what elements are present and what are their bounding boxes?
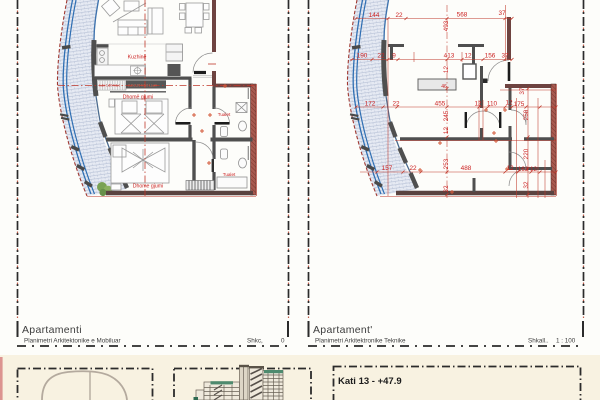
svg-text:190: 190 [357,53,368,60]
svg-text:Tualet: Tualet [223,172,236,177]
svg-text:12: 12 [443,66,450,74]
svg-text:Planimetri Arkitektronike Tekn: Planimetri Arkitektronike Teknike [315,338,406,345]
svg-text:156: 156 [485,53,496,60]
svg-text:12: 12 [474,101,482,108]
svg-text:1,1x 1,50 h:1,1: 1,1x 1,50 h:1,1 [99,84,120,88]
svg-text:253: 253 [443,158,450,169]
svg-text:Apartament': Apartament' [313,324,373,336]
svg-text:Shkc,: Shkc, [247,338,263,345]
svg-text:32: 32 [523,181,530,189]
svg-text:455: 455 [435,101,446,108]
svg-text:2,2x2,20 h:0,0 LLum: 2,2x2,20 h:0,0 LLum [128,83,157,87]
svg-text:37: 37 [519,87,526,95]
svg-text:22: 22 [409,165,417,172]
svg-text:12: 12 [443,127,450,135]
svg-text:245: 245 [443,110,450,121]
svg-text:Kati 13 - +47.9: Kati 13 - +47.9 [338,376,402,387]
svg-text:22: 22 [392,101,400,108]
svg-text:144: 144 [369,12,380,19]
svg-text:37: 37 [498,10,506,17]
svg-text:488: 488 [461,165,472,172]
svg-text:Apartamenti: Apartamenti [22,324,82,336]
svg-text:175: 175 [514,101,525,108]
svg-text:568: 568 [457,12,468,19]
svg-text:1 : 100: 1 : 100 [556,338,576,345]
svg-text:Dhomë gjumi: Dhomë gjumi [123,95,154,101]
svg-text:12: 12 [464,53,472,60]
svg-text:163: 163 [518,166,529,173]
svg-text:12: 12 [530,166,538,173]
svg-text:258: 258 [523,109,530,120]
svg-text:493: 493 [443,20,450,31]
svg-text:Dhome gjumi: Dhome gjumi [133,184,164,190]
svg-text:Planimetri Arkitektonike e Mob: Planimetri Arkitektonike e Mobiluar [24,338,121,345]
svg-text:Shkall..: Shkall.. [528,338,549,345]
svg-text:32: 32 [443,185,450,193]
svg-text:9: 9 [392,53,396,60]
svg-text:22: 22 [377,53,385,60]
svg-text:413: 413 [444,53,455,60]
svg-text:Tualet: Tualet [218,112,231,117]
svg-text:Kuzhinë: Kuzhinë [128,55,147,61]
svg-text:110: 110 [487,101,498,108]
svg-text:220: 220 [523,148,530,159]
svg-text:172: 172 [365,101,376,108]
svg-text:37: 37 [501,53,509,60]
svg-text:22: 22 [395,12,403,19]
svg-text:157: 157 [382,165,393,172]
svg-text:12: 12 [505,100,513,107]
svg-text:0: 0 [281,338,285,345]
